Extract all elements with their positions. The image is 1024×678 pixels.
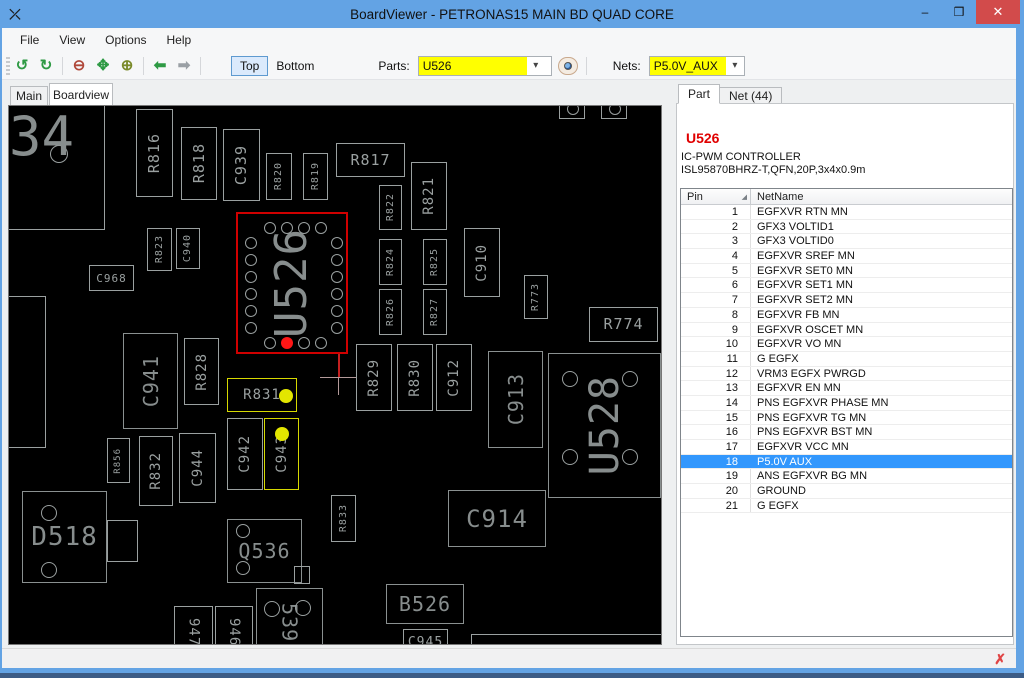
highlighted-pin-icon — [279, 389, 293, 403]
pin-row-18[interactable]: 18P5.0V AUX — [681, 455, 1012, 470]
pin-number: 11 — [681, 352, 751, 366]
component-C940[interactable]: C940 — [176, 228, 200, 269]
component-C939[interactable]: C939 — [223, 129, 260, 201]
pin-row-2[interactable]: 2GFX3 VOLTID1 — [681, 220, 1012, 235]
component-label: C910 — [475, 244, 489, 282]
component-539[interactable]: 539 — [256, 588, 323, 645]
pin-table: Pin ◢ NetName 1EGFXVR RTN MN2GFX3 VOLTID… — [680, 188, 1013, 637]
window-border-right — [1016, 28, 1024, 668]
pin-row-15[interactable]: 15PNS EGFXVR TG MN — [681, 411, 1012, 426]
bottom-side-toggle[interactable]: Bottom — [268, 57, 322, 75]
component-R832[interactable]: R832 — [139, 436, 173, 506]
nets-label: Nets: — [605, 57, 649, 75]
maximize-button[interactable]: ❒ — [942, 0, 976, 24]
selection-leader-line — [338, 354, 340, 377]
pin-pad-icon — [331, 305, 343, 317]
component-label: D518 — [31, 524, 98, 550]
component-label: R774 — [603, 317, 643, 332]
column-header-netname[interactable]: NetName — [751, 189, 1012, 204]
nets-combobox[interactable]: P5.0V_AUX ▾ — [649, 56, 745, 76]
pin-table-header: Pin ◢ NetName — [681, 189, 1012, 205]
component-label: C940 — [183, 234, 193, 262]
netname-column-label: NetName — [757, 191, 803, 203]
pin-number: 19 — [681, 469, 751, 483]
menu-help[interactable]: Help — [157, 30, 202, 50]
zoom-fit-button[interactable]: ✥ — [92, 56, 114, 76]
toolbar-separator — [62, 57, 63, 75]
component-U528[interactable]: U528 — [548, 353, 661, 498]
pin-number: 3 — [681, 234, 751, 248]
toolbar-grip[interactable] — [6, 57, 10, 75]
component-R823[interactable]: R823 — [147, 228, 172, 271]
window-title: BoardViewer - PETRONAS15 MAIN BD QUAD CO… — [0, 7, 1024, 22]
pin-pad-icon — [41, 505, 57, 521]
pin-pad-icon — [264, 222, 276, 234]
pin-netname: G EGFX — [751, 352, 1012, 366]
back-arrow-icon: ⬅ — [154, 58, 167, 73]
component-R774[interactable]: R774 — [589, 307, 658, 342]
minimize-button[interactable]: – — [908, 0, 942, 24]
component-C943[interactable]: C943 — [264, 418, 299, 490]
component-label: C942 — [238, 435, 252, 473]
pin-row-13[interactable]: 13EGFXVR EN MN — [681, 381, 1012, 396]
tab-main[interactable]: Main — [10, 86, 48, 105]
locate-part-button[interactable] — [558, 57, 578, 75]
titlebar: ⤫ BoardViewer - PETRONAS15 MAIN BD QUAD … — [0, 0, 1024, 28]
component-label: C939 — [234, 145, 249, 185]
pin-number: 14 — [681, 396, 751, 410]
component-label: R822 — [386, 193, 396, 221]
nets-value: P5.0V_AUX — [650, 57, 726, 75]
status-close-icon[interactable]: ✗ — [994, 651, 1006, 668]
column-header-pin[interactable]: Pin ◢ — [681, 189, 751, 204]
zoom-in-icon: ⊕ — [121, 58, 134, 73]
component-label: C945 — [408, 636, 443, 646]
component-label: U528 — [585, 375, 625, 475]
pin-row-9[interactable]: 9EGFXVR OSCET MN — [681, 323, 1012, 338]
component-D518[interactable]: D518 — [22, 491, 107, 583]
component-R824[interactable]: R824 — [379, 239, 402, 285]
component-label: C912 — [447, 359, 461, 397]
component-Q536[interactable]: Q536 — [227, 519, 302, 583]
pin-number: 21 — [681, 499, 751, 513]
pin-pad-icon — [281, 222, 293, 234]
pin-pad-icon — [264, 337, 276, 349]
component-C941[interactable]: C941 — [123, 333, 178, 429]
component-C912[interactable]: C912 — [436, 344, 472, 411]
component-946[interactable]: 946 — [215, 606, 253, 645]
pin-pad-icon — [295, 600, 311, 616]
part-package: ISL95870BHRZ-T,QFN,20P,3x4x0.9m — [681, 164, 865, 176]
component-B526[interactable]: B526 — [386, 584, 464, 624]
component-label: R827 — [430, 298, 440, 326]
panel-body: U526 IC-PWM CONTROLLER ISL95870BHRZ-T,QF… — [676, 103, 1014, 645]
part-info-panel: Part Net (44) U526 IC-PWM CONTROLLER ISL… — [676, 84, 1014, 645]
pin-netname: EGFXVR OSCET MN — [751, 323, 1012, 337]
zoom-out-button[interactable]: ⊖ — [68, 56, 90, 76]
tab-boardview[interactable]: Boardview — [49, 83, 113, 105]
component-R822[interactable]: R822 — [379, 185, 402, 230]
component-label: R828 — [195, 353, 209, 391]
pin-netname: EGFXVR VCC MN — [751, 440, 1012, 454]
pin-pad-icon — [245, 322, 257, 334]
parts-label: Parts: — [370, 57, 417, 75]
pin-number: 9 — [681, 323, 751, 337]
window-border-left — [0, 28, 2, 668]
pin-number: 1 — [681, 205, 751, 219]
menubar: File View Options Help — [2, 28, 1016, 52]
pin-row-1[interactable]: 1EGFXVR RTN MN — [681, 205, 1012, 220]
menu-options[interactable]: Options — [95, 30, 156, 50]
pin-number: 20 — [681, 484, 751, 498]
pin-netname: GFX3 VOLTID0 — [751, 234, 1012, 248]
component-R830[interactable]: R830 — [397, 344, 433, 411]
zoom-fit-icon: ✥ — [97, 58, 110, 73]
component-R833[interactable]: R833 — [331, 495, 356, 542]
pin-row-5[interactable]: 5EGFXVR SET0 MN — [681, 264, 1012, 279]
toolbar-separator — [586, 57, 587, 75]
forward-arrow-icon: ➡ — [178, 58, 191, 73]
pin-pad-icon — [245, 254, 257, 266]
pin-row-19[interactable]: 19ANS EGFXVR BG MN — [681, 469, 1012, 484]
component-label: R829 — [367, 359, 381, 397]
pin-pad-icon — [245, 305, 257, 317]
statusbar: ✗ — [2, 648, 1016, 668]
component-R829[interactable]: R829 — [356, 344, 392, 411]
pin-row-21[interactable]: 21G EGFX — [681, 499, 1012, 514]
pin-row-6[interactable]: 6EGFXVR SET1 MN — [681, 278, 1012, 293]
component-label: R856 — [114, 448, 123, 474]
pin-netname: GROUND — [751, 484, 1012, 498]
pin-pad-icon — [331, 271, 343, 283]
pin-row-16[interactable]: 16PNS EGFXVR BST MN — [681, 425, 1012, 440]
menu-view[interactable]: View — [49, 30, 95, 50]
pin-netname: GFX3 VOLTID1 — [751, 220, 1012, 234]
pin-pad-icon — [562, 371, 578, 387]
component-C945[interactable]: C945 — [403, 629, 448, 645]
component-label: R831 — [243, 388, 281, 402]
pin-pad-icon — [567, 105, 579, 115]
forward-button[interactable]: ➡ — [173, 56, 195, 76]
toolbar-separator — [200, 57, 201, 75]
component-label: C968 — [96, 273, 127, 284]
chevron-down-icon[interactable]: ▾ — [726, 60, 744, 71]
pin-number: 4 — [681, 249, 751, 263]
component-outline-extension — [107, 520, 138, 562]
pin-number: 13 — [681, 381, 751, 395]
pin-pad-icon — [236, 561, 250, 575]
component-C913[interactable]: C913 — [488, 351, 543, 448]
component-label: R823 — [155, 235, 165, 263]
pin-number: 15 — [681, 411, 751, 425]
pin-pad-icon — [562, 449, 578, 465]
boardviewer-window: { "window": { "title": "BoardViewer - PE… — [0, 0, 1024, 678]
component-R831[interactable]: R831 — [227, 378, 297, 412]
pin-pad-icon — [609, 105, 621, 115]
pin-pad-icon — [331, 288, 343, 300]
parts-value: U526 — [419, 57, 527, 75]
component-label: R820 — [274, 162, 284, 190]
pin-number: 18 — [681, 455, 751, 469]
pin-netname: PNS EGFXVR TG MN — [751, 411, 1012, 425]
component-label: C941 — [141, 355, 161, 407]
close-button[interactable]: ✕ — [976, 0, 1020, 24]
component-label: 947 — [187, 618, 201, 645]
component-pad-top-1[interactable] — [559, 105, 585, 119]
rotate-cw-icon: ↻ — [40, 58, 53, 73]
pin-row-20[interactable]: 20GROUND — [681, 484, 1012, 499]
component-edge-outline-left[interactable] — [8, 296, 46, 448]
pin-pad-icon — [245, 271, 257, 283]
component-label: Q536 — [238, 541, 290, 561]
pin-netname: EGFXVR SET2 MN — [751, 293, 1012, 307]
pin-number: 10 — [681, 337, 751, 351]
pin-pad-icon — [298, 222, 310, 234]
toolbar: ↺ ↻ ⊖ ✥ ⊕ ⬅ ➡ Top Bottom Parts: U526 ▾ N… — [2, 52, 1016, 80]
component-C914[interactable]: C914 — [448, 490, 546, 547]
component-label: R826 — [386, 298, 396, 326]
component-label: C944 — [191, 449, 205, 487]
component-R827[interactable]: R827 — [423, 289, 447, 335]
silkscreen-text: 34 — [9, 110, 74, 164]
component-label: R833 — [339, 504, 349, 532]
component-label: R824 — [386, 248, 396, 276]
pin-pad-icon — [622, 371, 638, 387]
pin-number: 6 — [681, 278, 751, 292]
component-label: R832 — [149, 452, 163, 490]
pin-pad-icon — [245, 288, 257, 300]
component-label: R830 — [408, 359, 422, 397]
component-R816[interactable]: R816 — [136, 109, 173, 197]
highlighted-pin-icon — [281, 337, 293, 349]
component-947[interactable]: 947 — [174, 606, 213, 645]
eye-icon — [564, 62, 572, 70]
pin-number: 8 — [681, 308, 751, 322]
pin-pad-icon — [622, 449, 638, 465]
pin-netname: EGFXVR SET1 MN — [751, 278, 1012, 292]
component-R828[interactable]: R828 — [184, 338, 219, 405]
pin-row-3[interactable]: 3GFX3 VOLTID0 — [681, 234, 1012, 249]
component-label: U526 — [270, 228, 314, 338]
component-C910[interactable]: C910 — [464, 228, 500, 297]
rotate-ccw-button[interactable]: ↺ — [11, 56, 33, 76]
chevron-down-icon[interactable]: ▾ — [527, 60, 545, 71]
pin-netname: PNS EGFXVR BST MN — [751, 425, 1012, 439]
component-label: B526 — [399, 594, 451, 614]
zoom-out-icon: ⊖ — [73, 58, 86, 73]
pin-row-17[interactable]: 17EGFXVR VCC MN — [681, 440, 1012, 455]
component-R820[interactable]: R820 — [266, 153, 292, 200]
component-label: R821 — [422, 177, 436, 215]
pin-pad-icon — [315, 337, 327, 349]
pin-netname: VRM3 EGFX PWRGD — [751, 367, 1012, 381]
pin-pad-icon — [315, 222, 327, 234]
pin-pad-icon — [331, 237, 343, 249]
pin-row-10[interactable]: 10EGFXVR VO MN — [681, 337, 1012, 352]
pin-row-11[interactable]: 11G EGFX — [681, 352, 1012, 367]
component-label: R816 — [147, 133, 162, 173]
pin-row-4[interactable]: 4EGFXVR SREF MN — [681, 249, 1012, 264]
pin-netname: EGFXVR VO MN — [751, 337, 1012, 351]
pin-number: 17 — [681, 440, 751, 454]
component-R826[interactable]: R826 — [379, 289, 402, 335]
pin-number: 16 — [681, 425, 751, 439]
parts-combobox[interactable]: U526 ▾ — [418, 56, 552, 76]
toolbar-separator — [143, 57, 144, 75]
pin-netname: EGFXVR RTN MN — [751, 205, 1012, 219]
pin-table-rows: 1EGFXVR RTN MN2GFX3 VOLTID13GFX3 VOLTID0… — [681, 205, 1012, 513]
tab-net[interactable]: Net (44) — [719, 87, 782, 104]
pin-row-12[interactable]: 12VRM3 EGFX PWRGD — [681, 367, 1012, 382]
pin-pad-icon — [264, 601, 280, 617]
pin-number: 12 — [681, 367, 751, 381]
part-description: IC-PWM CONTROLLER — [681, 151, 801, 163]
component-U526[interactable]: U526 — [236, 212, 348, 354]
component-R856[interactable]: R856 — [107, 438, 130, 483]
pin-pad-icon — [298, 337, 310, 349]
highlighted-pin-icon — [275, 427, 289, 441]
component-label: R825 — [430, 248, 440, 276]
selected-part-ref: U526 — [686, 130, 719, 146]
component-R817[interactable]: R817 — [336, 143, 405, 177]
menu-file[interactable]: File — [10, 30, 49, 50]
pin-netname: G EGFX — [751, 499, 1012, 513]
component-label: C913 — [506, 373, 526, 425]
pin-netname: ANS EGFXVR BG MN — [751, 469, 1012, 483]
zoom-in-button[interactable]: ⊕ — [116, 56, 138, 76]
component-edge-outline-br[interactable] — [471, 634, 662, 645]
pin-netname: EGFXVR FB MN — [751, 308, 1012, 322]
pin-pad-icon — [331, 254, 343, 266]
component-R819[interactable]: R819 — [303, 153, 328, 200]
pin-row-8[interactable]: 8EGFXVR FB MN — [681, 308, 1012, 323]
back-button[interactable]: ⬅ — [149, 56, 171, 76]
pin-netname: EGFXVR SREF MN — [751, 249, 1012, 263]
pin-number: 7 — [681, 293, 751, 307]
pin-number: 5 — [681, 264, 751, 278]
component-outline-extension — [294, 566, 310, 584]
rotate-cw-button[interactable]: ↻ — [35, 56, 57, 76]
component-label: C914 — [466, 507, 528, 531]
pin-column-label: Pin — [687, 191, 703, 203]
component-label: R773 — [531, 283, 541, 311]
top-side-toggle[interactable]: Top — [231, 56, 268, 76]
pin-number: 2 — [681, 220, 751, 234]
board-canvas[interactable]: R816R818C939R820R819R817R822R821R823C940… — [8, 105, 662, 645]
component-R825[interactable]: R825 — [423, 239, 447, 285]
component-pad-top-2[interactable] — [601, 105, 627, 119]
component-C942[interactable]: C942 — [227, 418, 263, 490]
pin-netname: P5.0V AUX — [751, 455, 1012, 469]
component-R818[interactable]: R818 — [181, 127, 217, 200]
component-label: R819 — [311, 162, 321, 190]
component-C968[interactable]: C968 — [89, 265, 134, 291]
pin-pad-icon — [245, 237, 257, 249]
pin-row-14[interactable]: 14PNS EGFXVR PHASE MN — [681, 396, 1012, 411]
pin-netname: EGFXVR EN MN — [751, 381, 1012, 395]
component-R821[interactable]: R821 — [411, 162, 447, 230]
pin-pad-icon — [236, 524, 250, 538]
pin-pad-icon — [41, 562, 57, 578]
component-label: R817 — [350, 153, 390, 168]
pin-netname: PNS EGFXVR PHASE MN — [751, 396, 1012, 410]
component-C944[interactable]: C944 — [179, 433, 216, 503]
component-label: R818 — [192, 143, 207, 183]
sort-indicator-icon: ◢ — [742, 193, 747, 201]
rotate-ccw-icon: ↺ — [16, 58, 29, 73]
window-border-bottom-edge — [0, 673, 1024, 678]
pin-netname: EGFXVR SET0 MN — [751, 264, 1012, 278]
component-R773[interactable]: R773 — [524, 275, 548, 319]
component-label: 946 — [227, 618, 241, 645]
pin-row-7[interactable]: 7EGFXVR SET2 MN — [681, 293, 1012, 308]
pin-pad-icon — [331, 322, 343, 334]
tab-part[interactable]: Part — [678, 84, 720, 104]
